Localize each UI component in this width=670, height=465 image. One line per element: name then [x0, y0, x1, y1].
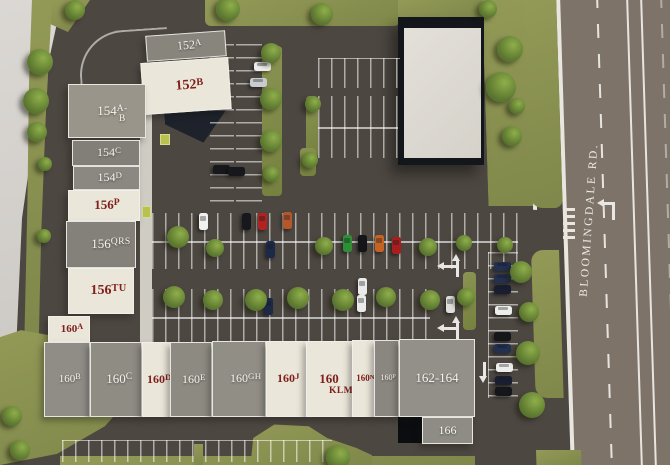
parked-car	[494, 262, 511, 271]
parked-car	[199, 213, 208, 230]
tree	[457, 288, 475, 306]
tree	[315, 237, 333, 255]
unit-166: 166	[422, 417, 473, 444]
tree	[479, 0, 497, 18]
unit-160GH: 160GH	[212, 341, 266, 417]
tree	[203, 290, 223, 310]
parking-stalls	[318, 58, 400, 88]
tree	[456, 235, 472, 251]
tree	[260, 88, 282, 110]
lane-line	[626, 0, 643, 465]
grass-road-verge	[531, 250, 564, 398]
unit-160E: 160E	[170, 342, 212, 417]
tree	[332, 289, 354, 311]
parked-car	[494, 332, 511, 341]
grass-road-verge	[536, 450, 581, 465]
straight-or-left-arrow	[441, 318, 465, 344]
parked-car	[258, 213, 267, 230]
unit-label: 152B	[175, 78, 197, 95]
parked-car	[250, 78, 267, 87]
tree	[261, 43, 281, 63]
parked-car	[254, 62, 271, 71]
unit-154C: 154C	[72, 140, 140, 166]
unit-154D: 154D	[73, 166, 140, 190]
tree	[206, 239, 224, 257]
unit-label: 160N	[356, 374, 370, 384]
parked-car	[494, 274, 511, 283]
straight-or-left-arrow	[441, 256, 465, 282]
stall-divider-line	[152, 317, 430, 319]
tree	[37, 229, 51, 243]
tree	[497, 237, 513, 253]
arrow-part	[437, 262, 444, 270]
unit-156TU: 156TU	[68, 268, 134, 314]
tree	[519, 392, 545, 418]
unit-label: 160B	[59, 373, 76, 385]
arrow-part	[597, 199, 604, 207]
unit-label: 154D	[98, 171, 116, 184]
lane-line	[640, 0, 657, 465]
lane-line	[596, 0, 613, 465]
tree	[510, 261, 532, 283]
arrow-part	[604, 202, 614, 205]
unit-label: 156TU	[91, 283, 112, 298]
tree	[497, 36, 523, 62]
arrow-part	[452, 316, 460, 323]
site-plan: BLOOMINGDALE RD. 152A152B154A-B154C154D1…	[0, 0, 670, 465]
tree	[287, 287, 309, 309]
unit-label: 160GH	[230, 372, 248, 385]
left-turn-arrow	[600, 196, 624, 222]
stall-divider-line	[318, 127, 398, 129]
utility-pad	[160, 134, 170, 145]
tree	[516, 341, 540, 365]
unit-160C: 160C	[90, 342, 142, 417]
tree	[502, 126, 522, 146]
parking-stalls	[62, 440, 332, 462]
unit-160J: 160J	[266, 341, 306, 417]
unit-label: 160KLM	[319, 372, 339, 386]
arrow-part	[444, 327, 457, 330]
tree	[263, 166, 279, 182]
anchor-building	[398, 17, 484, 165]
tree	[38, 157, 52, 171]
parked-car	[446, 296, 455, 313]
tree	[311, 3, 333, 25]
unit-156QRS: 156QRS	[66, 221, 136, 268]
parked-car	[357, 295, 366, 312]
unit-154A-B: 154A-B	[68, 84, 146, 138]
parked-car	[358, 278, 367, 295]
unit-label: 156QRS	[91, 237, 111, 251]
parked-car	[375, 235, 384, 252]
parked-car	[358, 235, 367, 252]
unit-152B: 152B	[140, 57, 231, 115]
tree	[419, 238, 437, 256]
unit-label: 160C	[106, 372, 126, 386]
unit-label: 156P	[94, 198, 114, 212]
parked-car	[213, 165, 230, 174]
tree	[27, 49, 53, 75]
parked-car	[266, 241, 275, 258]
arrow-part	[479, 376, 487, 383]
unit-label: 160D	[147, 373, 165, 386]
arrow-part	[437, 324, 444, 332]
tree	[10, 440, 30, 460]
tree	[509, 98, 525, 114]
tree	[486, 72, 516, 102]
unit-label: 160A	[61, 323, 78, 335]
unit-label: 152A	[177, 39, 196, 53]
tree	[163, 286, 185, 308]
rooftop-unit	[398, 417, 422, 443]
unit-160KLM: 160KLM	[306, 341, 352, 417]
unit-160D: 160D	[142, 342, 170, 417]
arrow-part	[483, 362, 486, 377]
tree	[27, 122, 47, 142]
parked-car	[228, 167, 245, 176]
arrow-part	[456, 323, 459, 339]
tree	[260, 130, 282, 152]
tree	[245, 289, 267, 311]
unit-label: 162-164	[415, 371, 458, 385]
tree	[65, 0, 85, 20]
unit-162-164: 162-164	[399, 339, 475, 417]
arrow-part	[456, 261, 459, 277]
unit-160N: 160N	[352, 340, 374, 417]
unit-label: 160J	[277, 372, 295, 385]
unit-160P: 160P	[374, 340, 399, 417]
tree	[302, 152, 318, 168]
lane-line	[660, 0, 670, 465]
tree	[23, 88, 49, 114]
utility-pad	[142, 206, 151, 218]
arrow-part	[444, 265, 457, 268]
tree	[420, 290, 440, 310]
unit-label: 160E	[182, 373, 200, 386]
grass-road-verge	[524, 0, 563, 208]
parked-car	[242, 213, 251, 230]
unit-label: 160P	[381, 374, 393, 383]
tree	[2, 406, 22, 426]
parked-car	[495, 306, 512, 315]
unit-label: 166	[439, 424, 457, 437]
parked-car	[392, 237, 401, 254]
unit-160A: 160A	[48, 316, 90, 342]
parked-car	[283, 212, 292, 229]
down-arrow	[479, 362, 503, 388]
tree	[519, 302, 539, 322]
unit-160B: 160B	[44, 342, 90, 417]
crosswalk	[563, 208, 575, 242]
parking-stalls	[318, 96, 398, 158]
tree	[305, 96, 321, 112]
tree	[326, 445, 350, 465]
anchor-building-roof	[404, 28, 481, 158]
arrow-part	[452, 254, 460, 261]
unit-label: 154A-B	[97, 104, 117, 118]
unit-label: 154C	[97, 146, 115, 159]
parked-car	[494, 344, 511, 353]
grass-top-band	[398, 0, 482, 17]
tree	[376, 287, 396, 307]
parked-car	[343, 235, 352, 252]
unit-156P: 156P	[68, 190, 140, 221]
tree	[167, 226, 189, 248]
parked-car	[494, 285, 511, 294]
